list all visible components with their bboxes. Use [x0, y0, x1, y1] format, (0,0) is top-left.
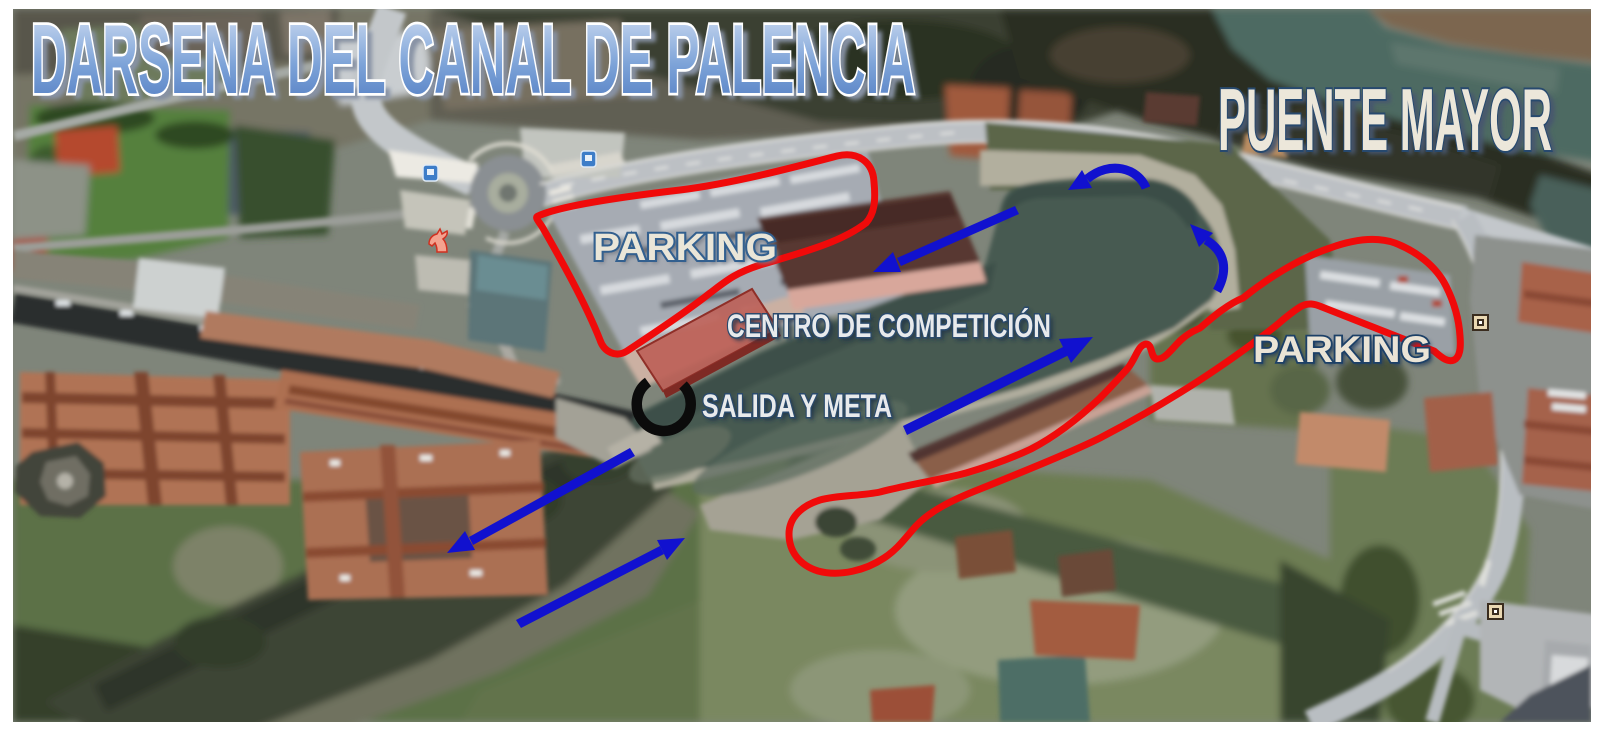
- svg-text:PARKING: PARKING: [593, 227, 777, 269]
- svg-text:SALIDA Y META: SALIDA Y META: [702, 388, 892, 424]
- svg-text:DARSENA DEL CANAL DE PALENCIA: DARSENA DEL CANAL DE PALENCIA: [31, 4, 915, 114]
- svg-text:PUENTE MAYOR: PUENTE MAYOR: [1218, 70, 1552, 169]
- svg-text:CENTRO DE COMPETICIÓN: CENTRO DE COMPETICIÓN: [727, 308, 1051, 344]
- svg-text:PARKING: PARKING: [1253, 329, 1431, 370]
